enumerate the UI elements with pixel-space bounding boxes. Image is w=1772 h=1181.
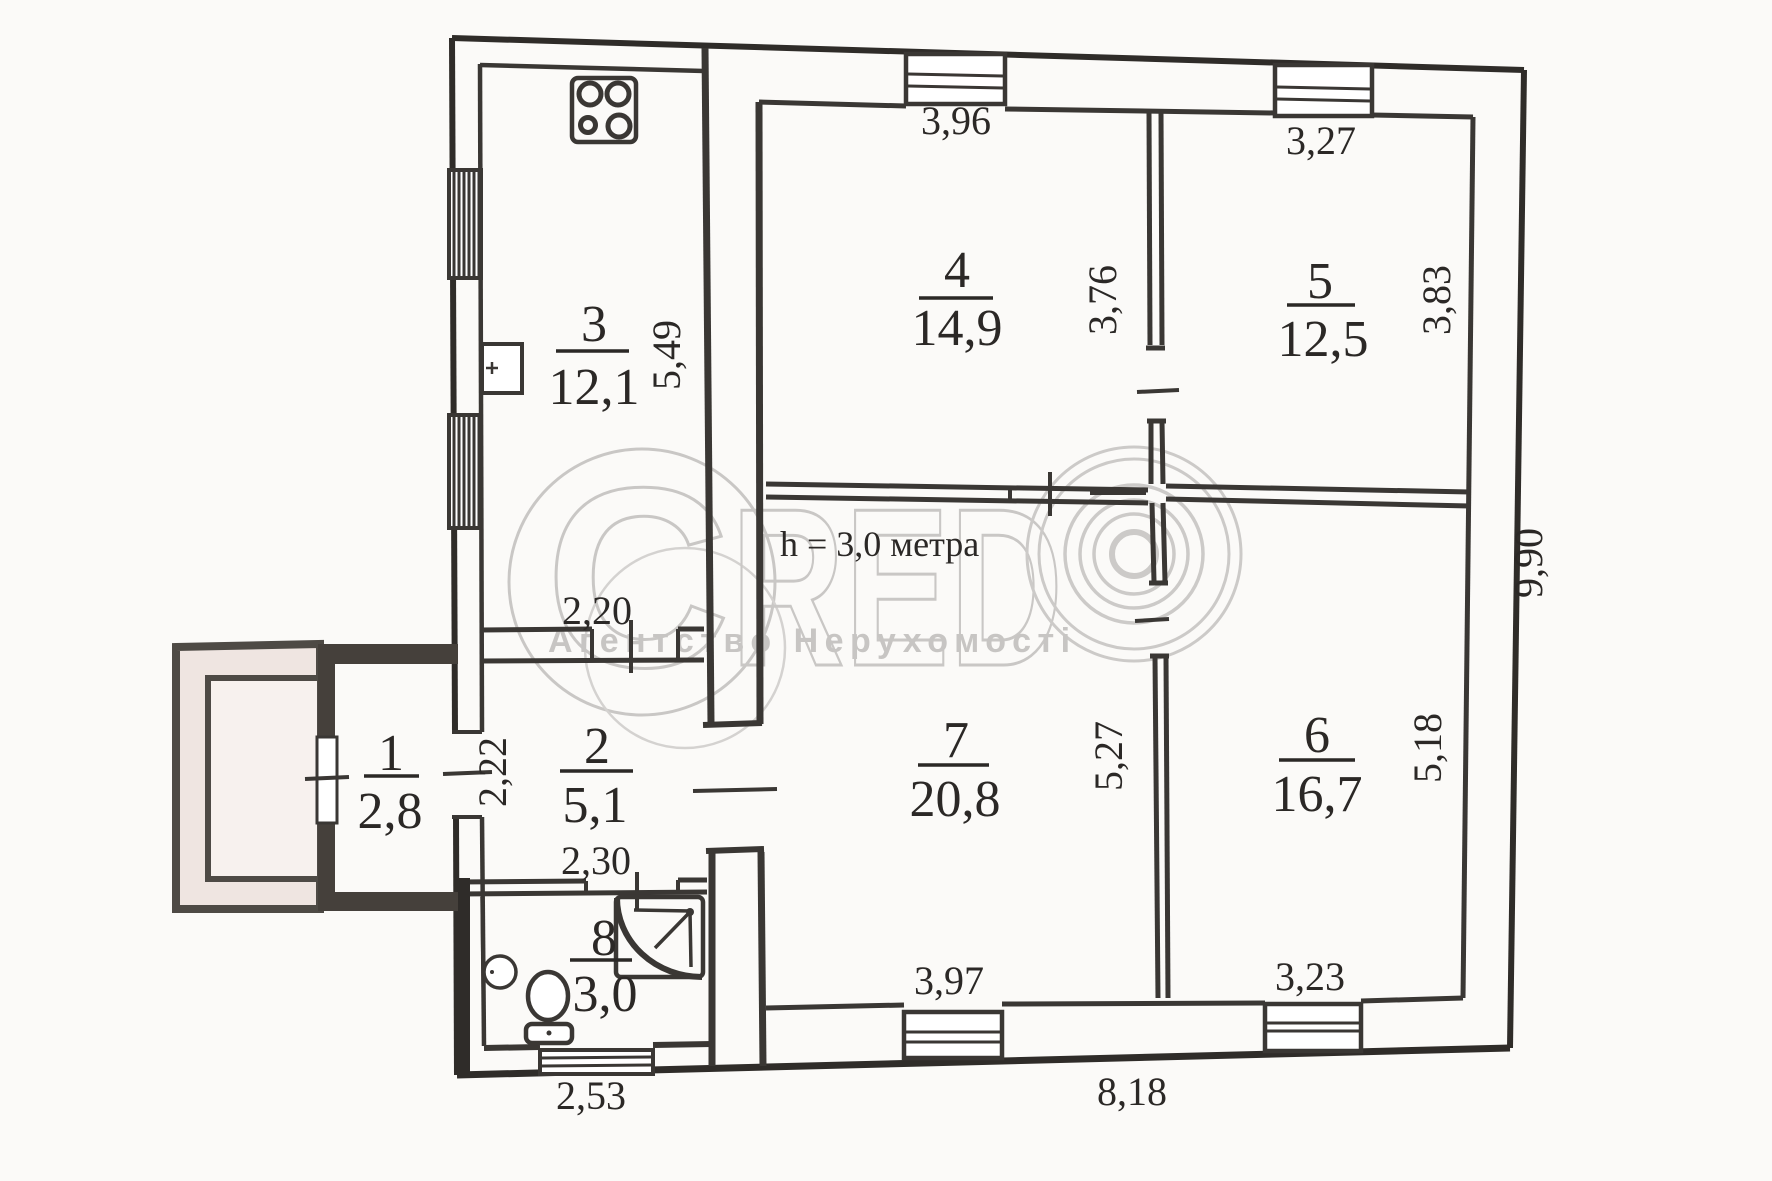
svg-text:12,1: 12,1 [549, 359, 640, 416]
svg-text:8,18: 8,18 [1097, 1069, 1167, 1114]
svg-text:5,1: 5,1 [563, 777, 628, 834]
svg-text:5,18: 5,18 [1405, 713, 1450, 783]
svg-text:9,90: 9,90 [1506, 528, 1551, 598]
svg-text:3,96: 3,96 [921, 98, 991, 143]
svg-text:2,20: 2,20 [562, 588, 632, 633]
svg-text:4: 4 [944, 242, 970, 299]
svg-text:1: 1 [378, 725, 404, 782]
svg-text:2,22: 2,22 [470, 737, 515, 807]
svg-text:7: 7 [943, 712, 969, 769]
svg-text:5,27: 5,27 [1086, 721, 1131, 791]
svg-text:3,83: 3,83 [1414, 265, 1459, 335]
svg-text:3,27: 3,27 [1286, 118, 1356, 163]
svg-text:2,53: 2,53 [556, 1073, 626, 1118]
svg-text:2: 2 [584, 718, 610, 775]
svg-text:C: C [546, 435, 731, 721]
svg-text:2,8: 2,8 [358, 783, 423, 840]
svg-text:3: 3 [581, 296, 607, 353]
svg-text:20,8: 20,8 [910, 771, 1001, 828]
svg-text:5,49: 5,49 [644, 320, 689, 390]
svg-text:16,7: 16,7 [1272, 766, 1363, 823]
svg-text:3,97: 3,97 [914, 958, 984, 1003]
svg-text:3,23: 3,23 [1275, 954, 1345, 999]
svg-text:12,5: 12,5 [1278, 311, 1369, 368]
svg-text:3,76: 3,76 [1080, 265, 1125, 335]
svg-text:2,30: 2,30 [561, 838, 631, 883]
svg-text:5: 5 [1307, 253, 1333, 310]
svg-text:3,0: 3,0 [573, 966, 638, 1023]
svg-text:h = 3,0 метра: h = 3,0 метра [780, 524, 979, 564]
svg-text:14,9: 14,9 [912, 300, 1003, 357]
svg-text:6: 6 [1304, 707, 1330, 764]
